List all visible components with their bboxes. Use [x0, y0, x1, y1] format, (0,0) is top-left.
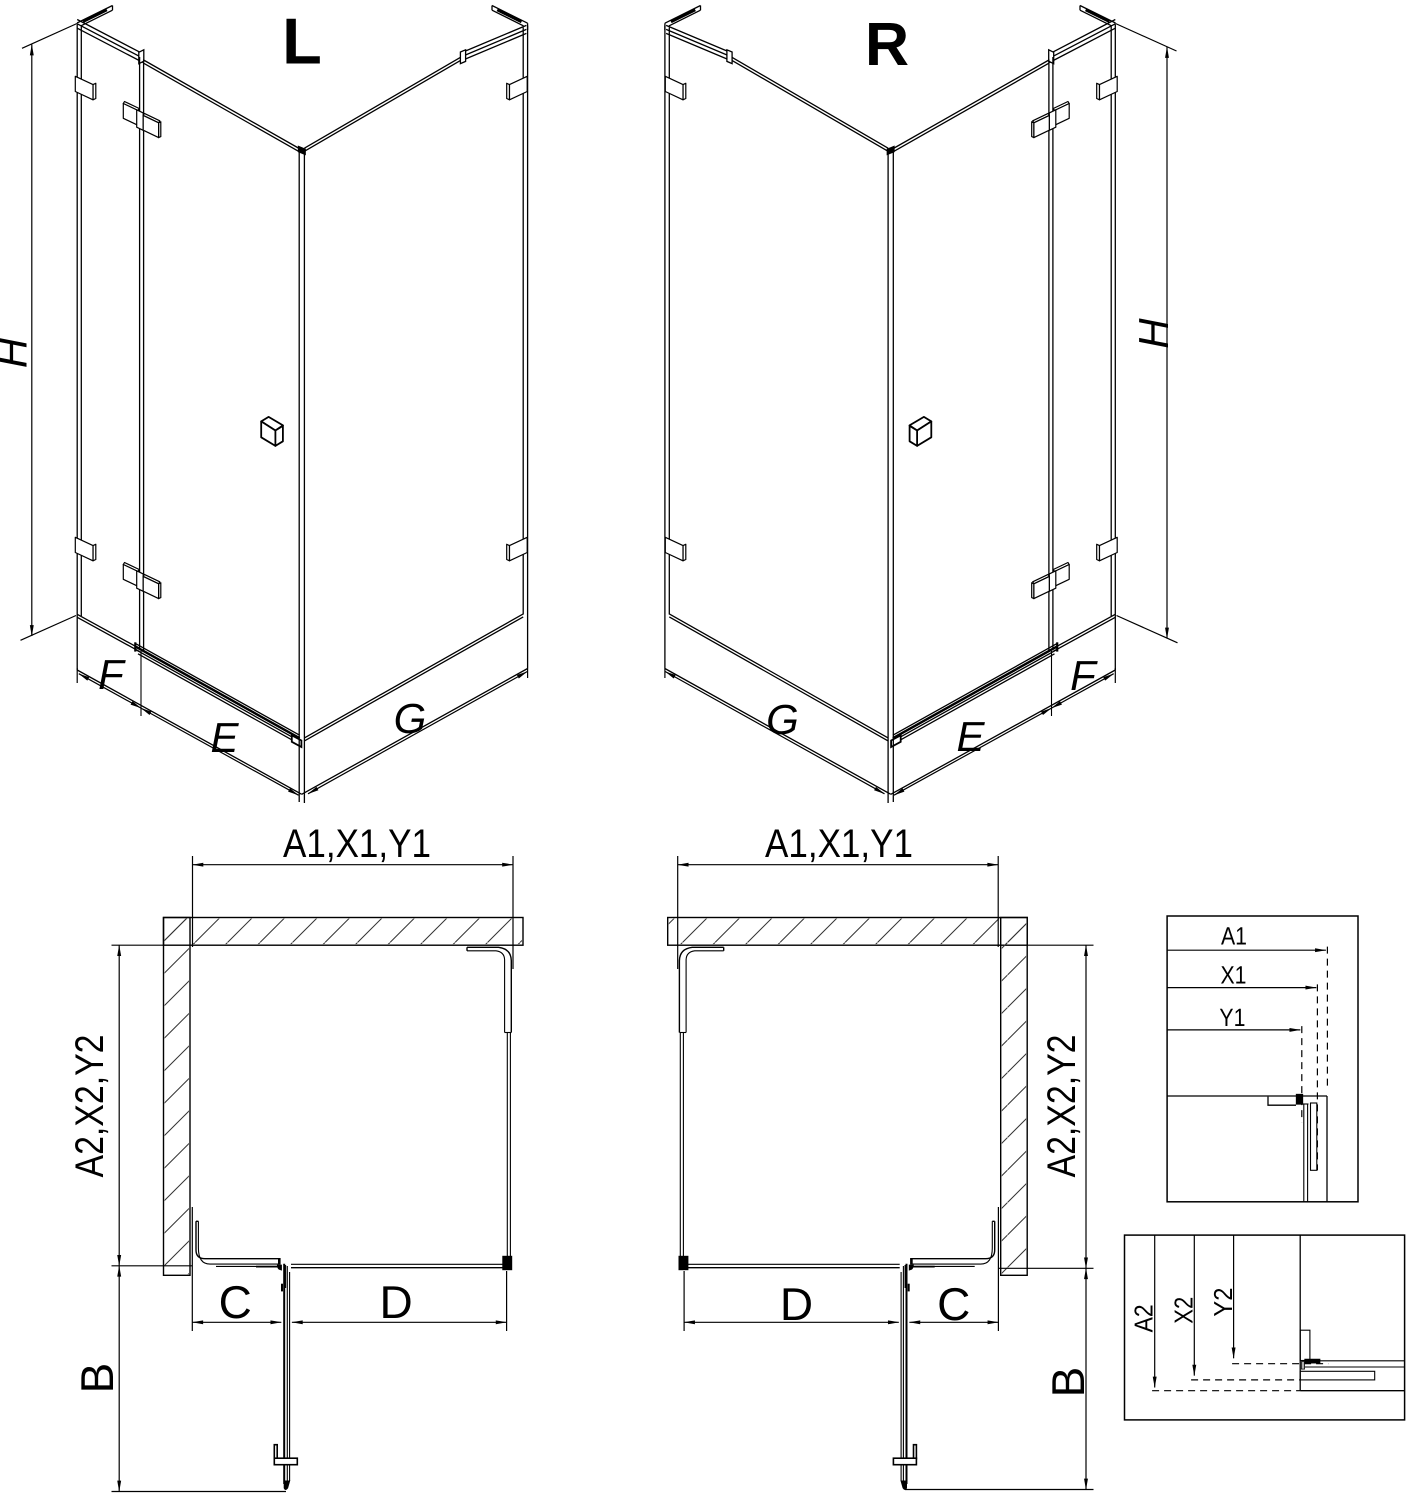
svg-text:B: B [1042, 1367, 1094, 1398]
svg-text:G: G [394, 695, 427, 742]
svg-text:F: F [98, 651, 126, 698]
svg-text:E: E [956, 713, 985, 760]
svg-text:A2,X2,Y2: A2,X2,Y2 [68, 1035, 112, 1178]
svg-text:H: H [1130, 318, 1177, 349]
svg-text:F: F [1070, 652, 1098, 699]
svg-text:A1,X1,Y1: A1,X1,Y1 [283, 822, 431, 866]
svg-text:E: E [210, 714, 239, 761]
svg-text:C: C [219, 1276, 252, 1328]
svg-text:A2,X2,Y2: A2,X2,Y2 [1040, 1035, 1084, 1178]
svg-text:B: B [71, 1363, 123, 1394]
svg-text:L: L [282, 5, 322, 78]
svg-text:C: C [937, 1278, 970, 1330]
svg-text:D: D [780, 1278, 813, 1330]
svg-text:R: R [865, 10, 909, 78]
svg-text:G: G [766, 696, 799, 743]
svg-text:X2: X2 [1169, 1297, 1199, 1324]
svg-text:Y1: Y1 [1219, 1004, 1245, 1032]
svg-text:X1: X1 [1221, 962, 1247, 990]
svg-text:A1: A1 [1221, 923, 1247, 951]
svg-text:H: H [0, 337, 36, 368]
svg-text:A1,X1,Y1: A1,X1,Y1 [765, 822, 913, 866]
svg-text:D: D [379, 1276, 412, 1328]
svg-text:A2: A2 [1129, 1304, 1159, 1332]
svg-text:Y2: Y2 [1208, 1288, 1238, 1317]
